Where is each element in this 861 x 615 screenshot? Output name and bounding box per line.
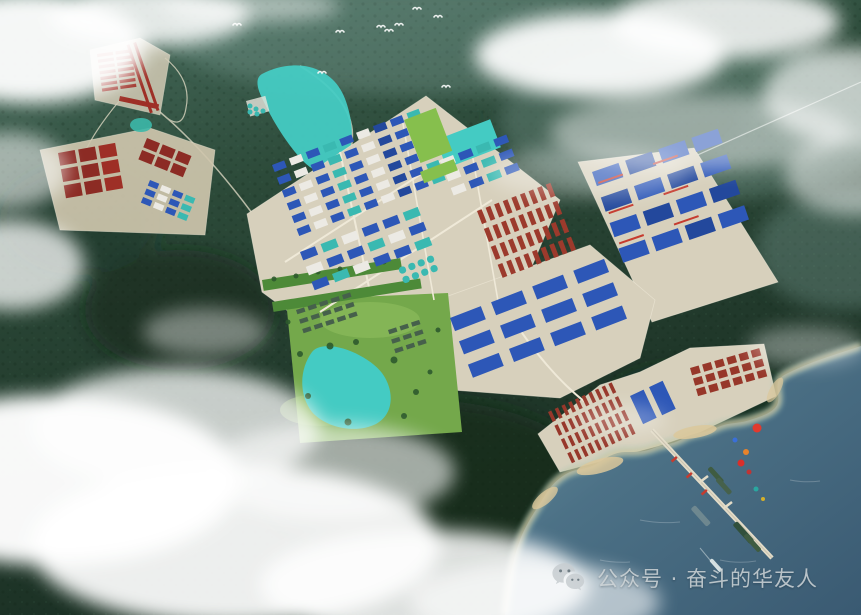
aerial-rendering: 公众号 · 奋斗的华友人	[0, 0, 861, 615]
jetty-marker	[747, 470, 752, 475]
jetty-marker	[733, 438, 738, 443]
scene-canvas	[0, 0, 861, 615]
jetty-marker	[754, 487, 759, 492]
jetty-marker	[753, 424, 762, 433]
jetty-marker	[738, 460, 745, 467]
park-lawn-patch	[320, 302, 420, 338]
jetty-marker	[743, 449, 749, 455]
jetty-marker	[761, 497, 765, 501]
camp-pond	[130, 118, 152, 132]
